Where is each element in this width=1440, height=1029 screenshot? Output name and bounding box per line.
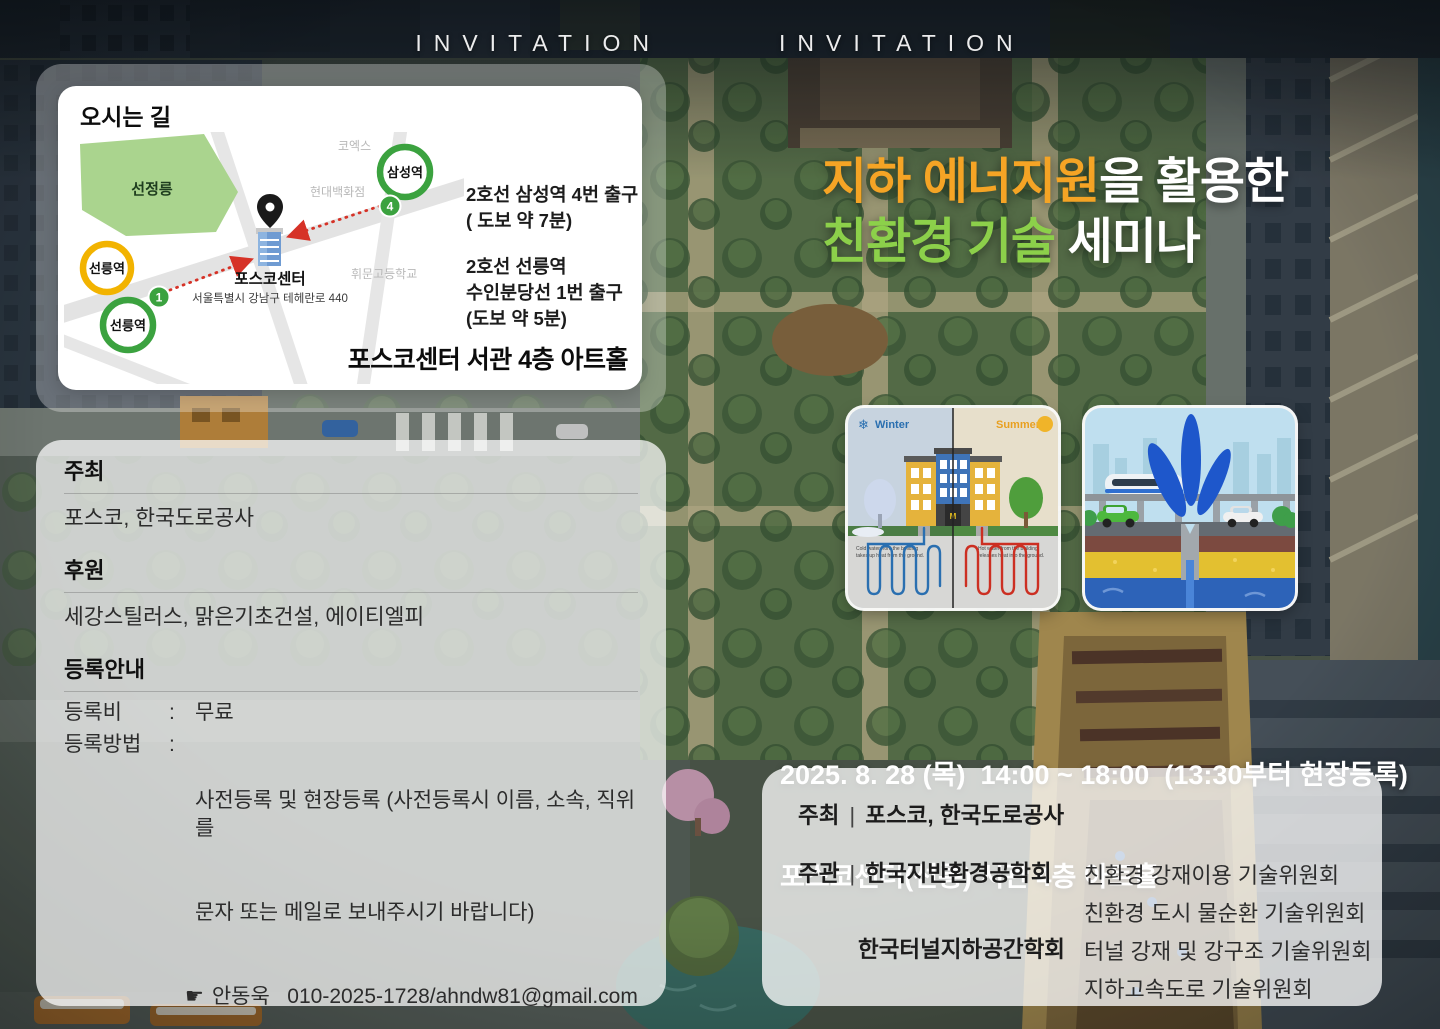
directions-seolleung-line3: (도보 약 5분)	[466, 306, 623, 332]
method-label: 등록방법	[64, 731, 161, 1029]
directions-samseong-line1: 2호선 삼성역 4번 출구	[466, 182, 638, 208]
org2-committee1: 터널 강재 및 강구조 기술위원회	[1084, 934, 1372, 966]
map-venue-name: 포스코센터	[234, 270, 305, 288]
fee-value: 무료	[195, 699, 638, 727]
host-label: 주최	[798, 803, 839, 828]
venue-hall-label: 포스코센터 서관 4층 아트홀	[348, 340, 628, 376]
station-seolleung-yellow-label: 선릉역	[89, 261, 125, 276]
organizer-org1: 한국지반환경공학회	[865, 861, 1051, 886]
org1-committee1: 친환경 강재이용 기술위원회	[1084, 858, 1339, 890]
station-seolleung-green-label: 선릉역	[110, 318, 146, 333]
fee-colon: :	[169, 699, 187, 727]
invitation-word-right: INVITATION	[779, 30, 1025, 57]
pointing-hand-icon: ☛	[185, 985, 204, 1008]
summer-caption-line2: releases heat into the ground.	[978, 553, 1044, 559]
winter-label: Winter	[875, 419, 910, 431]
invitation-word-left: INVITATION	[415, 30, 661, 57]
contact-text: 안동욱 010-2025-1728/ahndw81@gmail.com	[212, 985, 638, 1008]
organizer-label: 주관	[798, 861, 839, 886]
map-poi-whimoon: 휘문고등학교	[351, 267, 417, 281]
sponsor-content: 세강스틸러스, 맑은기초건설, 에이티엘피	[64, 600, 638, 631]
sun-icon	[1037, 416, 1053, 432]
groundwater-diagram-card	[1085, 408, 1295, 608]
map-park-label: 선정릉	[131, 180, 173, 198]
organizer-org2: 한국터널지하공간학회	[858, 932, 1065, 964]
org1-committee2: 친환경 도시 물순환 기술위원회	[1084, 896, 1365, 928]
org2-committee2: 지하고속도로 기술위원회	[1084, 972, 1313, 1004]
seminar-title-line2: 친환경 기술 세미나	[822, 212, 1288, 272]
separator: |	[839, 861, 865, 886]
winter-caption-line2: takes up heat from the ground.	[856, 553, 924, 559]
seminar-title: 지하 에너지원을 활용한 친환경 기술 세미나	[822, 152, 1288, 272]
host-value: 포스코, 한국도로공사	[865, 803, 1064, 828]
event-info-panel: 주최 포스코, 한국도로공사 후원 세강스틸러스, 맑은기초건설, 에이티엘피 …	[36, 440, 666, 1006]
title-line2-rest: 세미나	[1055, 215, 1200, 269]
host-content: 포스코, 한국도로공사	[64, 501, 638, 532]
fee-label: 등록비	[64, 699, 161, 727]
map-pin-hole	[266, 203, 275, 212]
summer-label: Summer	[996, 419, 1041, 431]
directions-samseong: 2호선 삼성역 4번 출구 ( 도보 약 7분)	[466, 182, 638, 234]
building-left-wing	[906, 462, 936, 526]
seminar-invitation-poster: INVITATION INVITATION 오시는 길 선정릉	[0, 0, 1440, 1029]
directions-samseong-line2: ( 도보 약 7분)	[466, 208, 638, 234]
registration-contact: ☛안동욱 010-2025-1728/ahndw81@gmail.com	[185, 983, 638, 1011]
separator: |	[839, 803, 865, 828]
organizer-row: 주관|한국지반환경공학회	[798, 856, 1052, 888]
directions-map-card: 오시는 길 선정릉 코엑스 현대백화점 휘문고등학교	[58, 86, 642, 390]
station-samseong-label: 삼성역	[387, 165, 423, 180]
directions-seolleung-line1: 2호선 선릉역	[466, 254, 623, 280]
sponsor-header: 후원	[64, 553, 638, 585]
map-card-glass-frame: 오시는 길 선정릉 코엑스 현대백화점 휘문고등학교	[36, 64, 666, 412]
title-line1-rest: 을 활용한	[1099, 155, 1288, 209]
snowflake-icon: ❄	[858, 417, 869, 432]
directions-seolleung: 2호선 선릉역 수인분당선 1번 출구 (도보 약 5분)	[466, 254, 623, 332]
host-header: 주최	[64, 454, 638, 486]
divider	[64, 592, 638, 593]
geothermal-winter-summer-diagram: M ❄ Winter Summer Cold water from the bu…	[848, 408, 1058, 608]
groundwater-city-diagram	[1085, 408, 1295, 608]
exit-badge-4: 4	[387, 200, 394, 214]
exit-badge-1: 1	[156, 291, 163, 305]
summer-caption-line1: Hot water from the building	[978, 546, 1038, 552]
directions-seolleung-line2: 수인분당선 1번 출구	[466, 280, 623, 306]
geothermal-diagram-card: M ❄ Winter Summer Cold water from the bu…	[848, 408, 1058, 608]
method-line2: 문자 또는 메일로 보내주시기 바랍니다)	[195, 899, 638, 927]
building-right-wing	[970, 462, 1000, 526]
method-line1: 사전등록 및 현장등록 (사전등록시 이름, 소속, 직위를	[195, 787, 638, 843]
divider	[64, 493, 638, 494]
title-highlight-green: 친환경 기술	[822, 215, 1055, 269]
title-highlight-orange: 지하 에너지원	[822, 155, 1099, 209]
organizers-panel: 주최|포스코, 한국도로공사 주관|한국지반환경공학회 친환경 강재이용 기술위…	[762, 768, 1382, 1006]
method-value: 사전등록 및 현장등록 (사전등록시 이름, 소속, 직위를 문자 또는 메일로…	[195, 731, 638, 1029]
registration-header: 등록안내	[64, 652, 638, 684]
divider	[64, 691, 638, 692]
invitation-header: INVITATION INVITATION	[0, 30, 1440, 57]
seminar-title-line1: 지하 에너지원을 활용한	[822, 152, 1288, 212]
map-venue-address: 서울특별시 강남구 테헤란로 440	[192, 292, 348, 305]
registration-rows: 등록비 : 무료 등록방법 : 사전등록 및 현장등록 (사전등록시 이름, 소…	[64, 699, 638, 1029]
organizer-host-row: 주최|포스코, 한국도로공사	[798, 798, 1064, 830]
map-poi-coex: 코엑스	[338, 139, 371, 153]
map-card-title: 오시는 길	[80, 98, 171, 132]
map-poi-hyundai: 현대백화점	[310, 185, 365, 199]
